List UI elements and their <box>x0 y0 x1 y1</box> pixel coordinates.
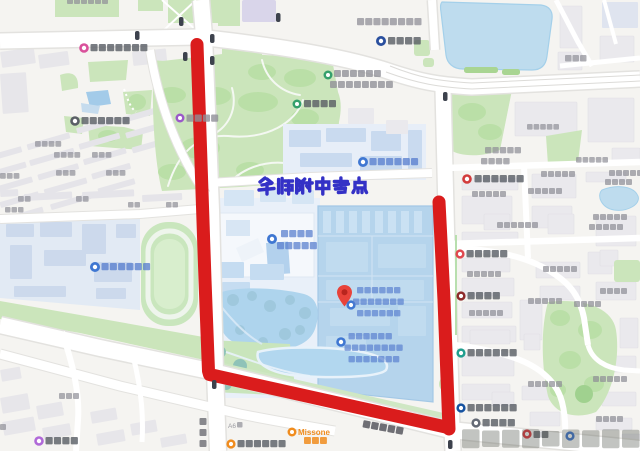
svg-text:Missone: Missone <box>298 428 331 437</box>
svg-text:A6: A6 <box>228 423 236 430</box>
